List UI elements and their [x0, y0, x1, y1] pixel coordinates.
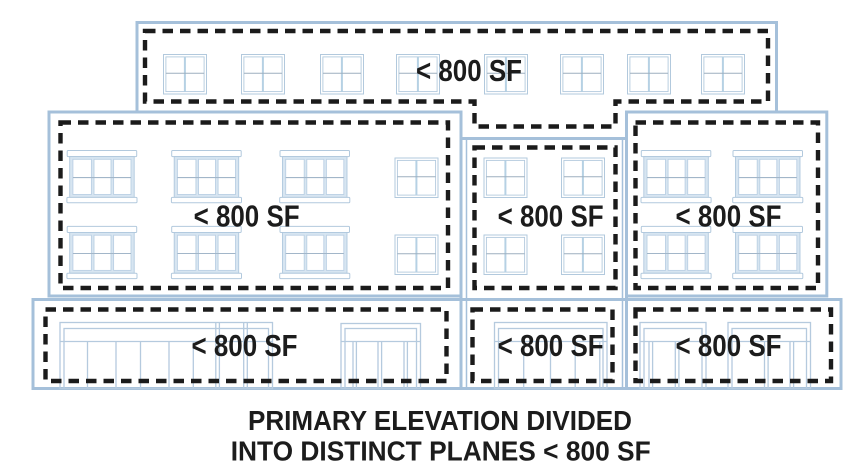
svg-text:INTO DISTINCT PLANES < 800 SF: INTO DISTINCT PLANES < 800 SF: [231, 435, 651, 466]
svg-text:PRIMARY ELEVATION DIVIDED: PRIMARY ELEVATION DIVIDED: [248, 405, 632, 436]
svg-text:< 800 SF: < 800 SF: [416, 53, 522, 88]
svg-text:< 800 SF: < 800 SF: [192, 328, 298, 363]
svg-text:< 800 SF: < 800 SF: [676, 199, 782, 234]
svg-text:< 800 SF: < 800 SF: [498, 199, 604, 234]
svg-text:< 800 SF: < 800 SF: [676, 328, 782, 363]
svg-text:< 800 SF: < 800 SF: [498, 328, 604, 363]
svg-text:< 800 SF: < 800 SF: [194, 199, 300, 234]
